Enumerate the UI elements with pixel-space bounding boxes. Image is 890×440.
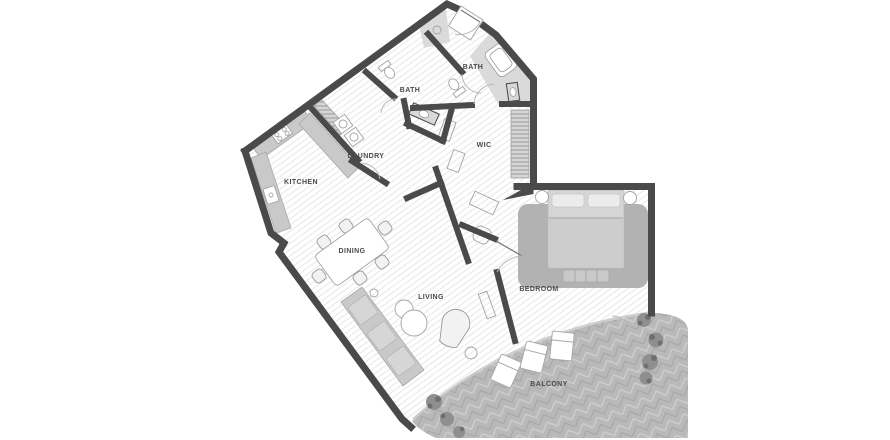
room-label-dining: DINING <box>339 248 366 255</box>
room-label-bath-mid: BATH <box>400 87 421 94</box>
floorplan-canvas: KITCHEN LAUNDRY BATH BATH WIC DINING LIV… <box>0 0 890 440</box>
room-label-balcony: BALCONY <box>530 381 567 388</box>
plant-icon <box>642 354 658 370</box>
bed-bench <box>563 270 609 282</box>
apartment: KITCHEN LAUNDRY BATH BATH WIC DINING LIV… <box>245 4 688 438</box>
room-label-living: LIVING <box>418 294 444 301</box>
wardrobe-column <box>511 110 529 178</box>
floor-plan: KITCHEN LAUNDRY BATH BATH WIC DINING LIV… <box>0 0 890 440</box>
bed <box>548 190 624 268</box>
lounge-chair <box>550 331 575 361</box>
plant-icon <box>453 426 465 438</box>
nightstand <box>624 192 637 205</box>
plant-icon <box>440 412 454 426</box>
coffee-table <box>401 310 427 336</box>
room-label-laundry: LAUNDRY <box>348 153 385 160</box>
wall-wic-top-left <box>413 105 472 108</box>
vanity-sink-icon <box>506 82 519 101</box>
room-label-wic: WIC <box>477 142 492 149</box>
room-label-bath-top: BATH <box>463 64 484 71</box>
plant-icon <box>640 372 653 385</box>
room-label-bedroom: BEDROOM <box>519 286 558 293</box>
plant-icon <box>649 333 664 348</box>
room-label-kitchen: KITCHEN <box>284 179 318 186</box>
nightstand <box>536 191 549 204</box>
plant-icon <box>426 394 442 410</box>
